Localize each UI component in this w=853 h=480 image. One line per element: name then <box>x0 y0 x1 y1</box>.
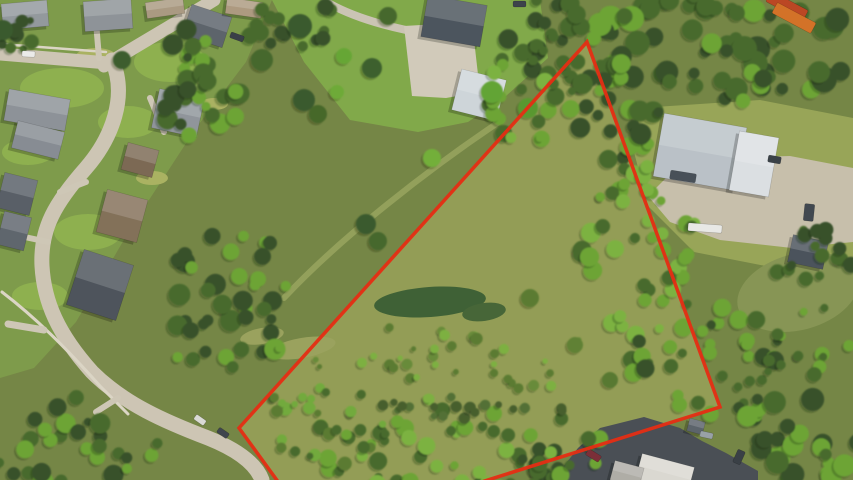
tree <box>227 108 244 125</box>
tree <box>820 304 828 312</box>
tree <box>450 461 458 469</box>
tree <box>630 123 651 144</box>
tree <box>504 375 513 384</box>
tree <box>157 99 174 116</box>
tree <box>169 284 191 306</box>
tree <box>179 81 196 98</box>
tree <box>430 460 443 473</box>
tree <box>579 99 594 114</box>
tree <box>488 425 500 437</box>
tree <box>369 232 387 250</box>
tree <box>662 74 677 89</box>
tree <box>752 394 763 405</box>
tree <box>28 412 43 427</box>
tree <box>49 398 67 416</box>
tree <box>780 419 795 434</box>
tree <box>257 302 272 317</box>
tree <box>234 342 250 358</box>
tree <box>200 35 212 47</box>
tree <box>490 349 499 358</box>
tree <box>355 424 367 436</box>
tree <box>356 214 376 234</box>
tree <box>499 29 518 48</box>
tree <box>446 426 456 436</box>
tree <box>298 393 307 402</box>
tree <box>453 369 459 375</box>
tree <box>38 423 52 437</box>
tree <box>606 240 624 258</box>
tree <box>69 390 84 405</box>
tree <box>381 430 389 438</box>
tree <box>664 359 678 373</box>
tree <box>819 353 827 361</box>
tree <box>764 368 772 376</box>
tree <box>379 7 397 25</box>
tree <box>430 345 439 354</box>
tree <box>672 397 687 412</box>
tree <box>567 5 585 23</box>
tree <box>734 382 743 391</box>
tree <box>16 441 34 459</box>
tree <box>546 369 554 377</box>
tree <box>5 42 16 53</box>
tree <box>336 48 352 64</box>
tree <box>92 439 106 453</box>
tree <box>271 405 283 417</box>
tree <box>532 115 545 128</box>
tree <box>629 101 650 122</box>
tree <box>390 399 397 406</box>
tree <box>833 242 846 255</box>
tree <box>439 330 450 341</box>
tree <box>423 394 432 403</box>
tree <box>275 344 283 352</box>
tree <box>713 299 731 317</box>
tree <box>664 340 678 354</box>
tree <box>776 360 786 370</box>
tree <box>743 0 766 22</box>
tree <box>471 333 483 345</box>
tree <box>678 251 692 265</box>
tree <box>737 406 758 427</box>
tree <box>418 437 436 455</box>
tree <box>800 308 808 316</box>
tree <box>330 85 344 99</box>
car <box>22 51 35 58</box>
tree <box>413 374 420 381</box>
tree <box>263 324 279 340</box>
tree <box>548 31 558 41</box>
tree <box>145 449 158 462</box>
tree <box>223 243 240 260</box>
tree <box>398 356 403 361</box>
tree <box>90 413 110 433</box>
tree <box>238 231 249 242</box>
tree <box>491 361 497 367</box>
tree <box>478 422 488 432</box>
tree <box>520 403 530 413</box>
tree <box>431 413 438 420</box>
tree <box>732 36 757 61</box>
tree <box>204 228 220 244</box>
tree <box>502 428 516 442</box>
tree <box>810 224 824 238</box>
tree <box>401 430 416 445</box>
tree <box>288 14 312 38</box>
tree <box>171 253 185 267</box>
tree <box>290 446 300 456</box>
tree <box>777 83 789 95</box>
tree <box>181 128 197 144</box>
tree <box>657 196 666 205</box>
tree <box>263 236 277 250</box>
tree <box>518 454 527 463</box>
tree <box>689 79 704 94</box>
tree <box>265 38 276 49</box>
tree <box>641 160 654 173</box>
tree <box>602 372 618 388</box>
tree <box>596 192 605 201</box>
tree <box>568 87 576 95</box>
car <box>513 1 526 7</box>
tree <box>432 361 439 368</box>
street-horizontal <box>0 54 108 63</box>
tree <box>682 19 703 40</box>
tree <box>309 105 327 123</box>
tree <box>793 351 803 361</box>
tree <box>499 442 515 458</box>
tree <box>815 271 824 280</box>
tree <box>639 293 652 306</box>
tree <box>807 367 822 382</box>
tree <box>616 8 632 24</box>
tree <box>451 401 462 412</box>
tree <box>702 33 722 53</box>
aerial-photo-canvas <box>0 0 853 480</box>
tree <box>411 346 416 351</box>
tree <box>754 70 772 88</box>
tree <box>113 51 131 69</box>
tree <box>748 311 766 329</box>
tree <box>697 326 708 337</box>
tree <box>227 361 239 373</box>
tree <box>764 391 786 413</box>
tree <box>538 17 551 30</box>
scene-layers <box>0 0 853 480</box>
tree <box>506 132 517 143</box>
tree <box>510 405 518 413</box>
tree <box>198 319 209 330</box>
tree <box>543 358 548 363</box>
tree <box>369 452 387 470</box>
tree <box>298 41 308 51</box>
tree <box>341 430 352 441</box>
tree <box>787 261 796 270</box>
tree <box>528 56 538 66</box>
tree <box>314 410 321 417</box>
tree <box>276 443 286 453</box>
tree <box>516 84 527 95</box>
tree <box>730 310 748 328</box>
tree <box>175 119 186 130</box>
tree <box>689 68 700 79</box>
tree <box>536 134 544 142</box>
tree <box>703 346 717 360</box>
tree <box>480 400 491 411</box>
tree <box>570 118 590 138</box>
tree <box>233 291 253 311</box>
tree <box>799 272 813 286</box>
tree <box>678 349 687 358</box>
tree <box>714 72 732 90</box>
tree <box>763 355 775 367</box>
tree <box>201 283 216 298</box>
tree <box>242 27 259 44</box>
tree <box>322 388 330 396</box>
tree <box>636 359 654 377</box>
tree <box>567 337 583 353</box>
tree <box>173 352 183 362</box>
tree <box>358 441 370 453</box>
tree <box>546 381 556 391</box>
tree <box>717 371 728 382</box>
tree <box>499 344 509 354</box>
tree <box>267 314 277 324</box>
tree <box>307 453 314 460</box>
tree <box>228 84 243 99</box>
tree <box>338 457 352 471</box>
tree <box>691 396 705 410</box>
tree <box>637 278 651 292</box>
tree <box>757 431 774 448</box>
tree <box>357 390 366 399</box>
tree <box>423 149 441 167</box>
tree <box>292 401 298 407</box>
tree <box>357 358 367 368</box>
tree <box>317 364 322 369</box>
tree <box>619 178 630 189</box>
tree <box>490 369 498 377</box>
tree <box>593 110 604 121</box>
tree <box>183 322 199 338</box>
tree <box>630 233 640 243</box>
tree <box>391 415 404 428</box>
tree <box>345 406 356 417</box>
tree <box>398 401 407 410</box>
tree <box>514 383 524 393</box>
tree <box>539 46 548 55</box>
tree <box>378 400 389 411</box>
car <box>803 204 815 222</box>
tree <box>826 8 849 31</box>
tree <box>612 54 631 73</box>
tree <box>183 53 192 62</box>
tree <box>213 295 232 314</box>
tree <box>471 408 480 417</box>
tree <box>545 446 557 458</box>
tree <box>801 388 824 411</box>
tree <box>521 289 539 307</box>
tree <box>316 31 331 46</box>
tree <box>707 320 716 329</box>
tree <box>495 401 502 408</box>
tree <box>604 124 618 138</box>
tree <box>307 395 315 403</box>
tree <box>720 44 733 57</box>
tree <box>820 449 832 461</box>
tree <box>447 393 455 401</box>
house-roof <box>80 0 133 35</box>
tree <box>766 451 789 474</box>
tree <box>121 452 132 463</box>
tree <box>379 421 386 428</box>
tree <box>616 194 630 208</box>
aerial-photo <box>0 0 853 480</box>
tree <box>565 460 575 470</box>
tree <box>580 247 599 266</box>
tree <box>430 403 438 411</box>
tree <box>654 107 664 117</box>
tree <box>184 38 201 55</box>
tree <box>481 81 503 103</box>
tree <box>614 310 626 322</box>
tree <box>389 363 398 372</box>
tree <box>562 100 579 117</box>
tree <box>487 65 501 79</box>
tree <box>772 328 784 340</box>
tree <box>239 310 254 325</box>
tree <box>251 49 273 71</box>
tree <box>745 376 755 386</box>
tree <box>199 72 217 90</box>
tree <box>370 353 377 360</box>
tree <box>599 150 617 168</box>
tree <box>122 464 132 474</box>
tree <box>402 359 413 370</box>
tree <box>596 219 611 234</box>
tree <box>772 50 795 73</box>
tree <box>320 450 337 467</box>
tree <box>439 411 448 420</box>
tree <box>729 5 745 21</box>
tree <box>254 248 271 265</box>
tree <box>202 102 211 111</box>
tree <box>524 428 538 442</box>
tree <box>774 24 793 43</box>
tree <box>303 402 315 414</box>
tree <box>741 339 753 351</box>
tree <box>743 351 754 362</box>
tree <box>808 61 830 83</box>
tree <box>250 279 261 290</box>
tree <box>152 438 162 448</box>
tree <box>231 268 248 285</box>
tree <box>558 406 567 415</box>
tree <box>581 431 596 446</box>
tree <box>385 323 393 331</box>
tree <box>736 94 751 109</box>
tree <box>7 467 20 480</box>
tree <box>528 380 539 391</box>
tree <box>362 58 382 78</box>
tree <box>255 3 269 17</box>
tree <box>200 346 212 358</box>
tree <box>185 261 197 273</box>
tree <box>447 341 457 351</box>
tree <box>24 34 39 49</box>
tree <box>655 324 664 333</box>
tree <box>313 357 319 363</box>
tree <box>281 281 291 291</box>
tree <box>632 335 645 348</box>
tree <box>163 34 184 55</box>
tree <box>332 425 342 435</box>
tree <box>815 248 830 263</box>
